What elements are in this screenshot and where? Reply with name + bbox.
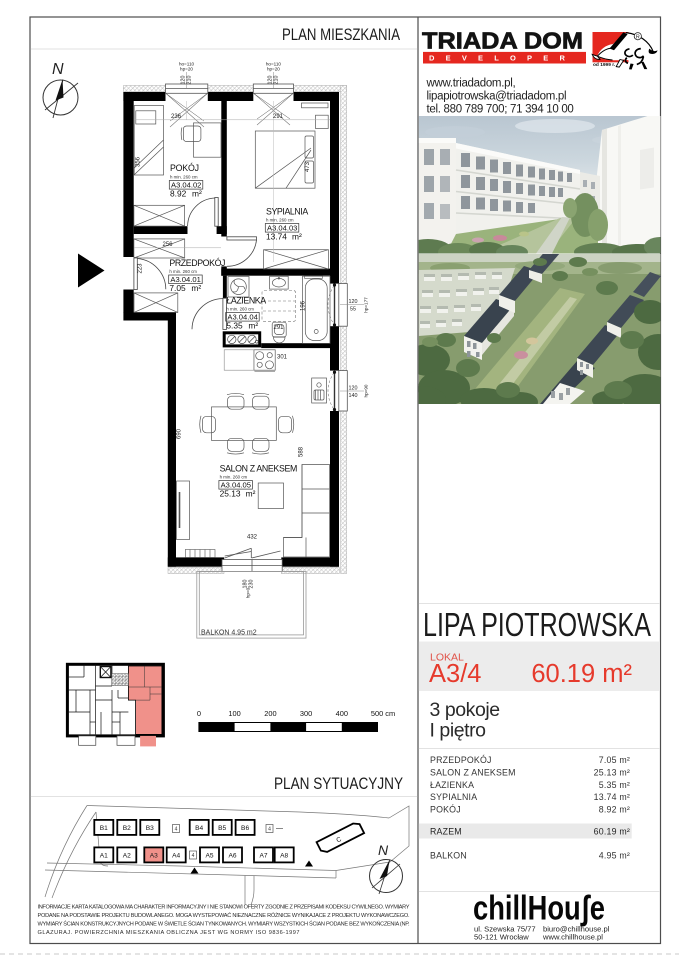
svg-text:BALKON: BALKON: [430, 851, 467, 861]
svg-text:8.92: 8.92: [170, 189, 187, 199]
svg-text:60.19 m²: 60.19 m²: [594, 827, 630, 837]
svg-text:TRIADA DOM: TRIADA DOM: [422, 28, 583, 54]
svg-text:25.13 m²: 25.13 m²: [594, 767, 630, 777]
svg-text:B6: B6: [241, 825, 249, 832]
svg-text:BALKON 4.95 m2: BALKON 4.95 m2: [201, 630, 257, 637]
svg-text:ŁAZIENKA: ŁAZIENKA: [226, 296, 266, 306]
svg-text:h min. 260 cm: h min. 260 cm: [226, 307, 254, 312]
svg-text:256: 256: [162, 242, 173, 248]
svg-text:291: 291: [273, 325, 284, 331]
svg-text:I piętro: I piętro: [430, 720, 487, 742]
svg-text:4.95 m²: 4.95 m²: [599, 851, 630, 861]
svg-text:A5: A5: [205, 853, 213, 860]
svg-text:hp=20: hp=20: [267, 67, 280, 72]
svg-text:DEVELOPER: DEVELOPER: [429, 54, 576, 63]
svg-text:SYPIALNIA: SYPIALNIA: [430, 792, 477, 802]
svg-text:N: N: [52, 61, 64, 78]
svg-text:5.35 m²: 5.35 m²: [599, 780, 630, 790]
svg-text:55: 55: [350, 307, 356, 313]
svg-text:POKÓJ: POKÓJ: [170, 163, 199, 173]
svg-text:25.13: 25.13: [220, 489, 241, 499]
svg-text:m²: m²: [248, 321, 258, 331]
svg-text:100: 100: [228, 709, 240, 718]
svg-text:500 cm: 500 cm: [371, 709, 395, 718]
svg-text:lipapiotrowska@triadadom.pl: lipapiotrowska@triadadom.pl: [427, 91, 567, 103]
svg-text:PRZEDPOKÓJ: PRZEDPOKÓJ: [430, 755, 492, 765]
svg-text:RAZEM: RAZEM: [430, 827, 462, 837]
svg-text:PLAN SYTUACYJNY: PLAN SYTUACYJNY: [274, 775, 403, 793]
svg-text:hp=90: hp=90: [364, 384, 369, 397]
svg-text:13.74 m²: 13.74 m²: [594, 792, 630, 802]
svg-text:50-121 Wrocław: 50-121 Wrocław: [474, 933, 529, 942]
svg-text:4: 4: [268, 827, 271, 833]
svg-text:m²: m²: [292, 232, 302, 242]
svg-text:www.triadadom.pl,: www.triadadom.pl,: [426, 78, 516, 90]
svg-text:hp=177: hp=177: [364, 297, 369, 313]
svg-text:SYPIALNIA: SYPIALNIA: [266, 207, 308, 217]
svg-text:PLAN MIESZKANIA: PLAN MIESZKANIA: [282, 26, 400, 44]
svg-text:0: 0: [197, 709, 201, 718]
svg-text:400: 400: [336, 709, 348, 718]
svg-text:hp=20: hp=20: [180, 67, 193, 72]
svg-text:300: 300: [300, 709, 312, 718]
svg-text:432: 432: [247, 535, 258, 541]
svg-text:A2: A2: [123, 853, 131, 860]
svg-text:473: 473: [305, 161, 311, 172]
svg-text:R: R: [636, 35, 640, 41]
svg-text:A7: A7: [259, 853, 267, 860]
svg-text:356: 356: [136, 156, 142, 167]
svg-text:hp=0: hp=0: [246, 587, 251, 598]
svg-text:SALON Z ANEKSEM: SALON Z ANEKSEM: [430, 767, 516, 777]
svg-text:m²: m²: [192, 189, 202, 199]
svg-text:236: 236: [171, 114, 182, 120]
svg-text:291: 291: [273, 114, 284, 120]
svg-text:7.05 m²: 7.05 m²: [599, 755, 630, 765]
svg-text:LIPA PIOTROWSKA: LIPA PIOTROWSKA: [423, 606, 651, 643]
svg-text:www.chillhouse.pl: www.chillhouse.pl: [542, 933, 603, 942]
svg-text:WYMIARY ŚCIAN KONSTRUKCYJNYCH: WYMIARY ŚCIAN KONSTRUKCYJNYCH PODANE W Ś…: [38, 920, 410, 928]
svg-text:PRZEDPOKÓJ: PRZEDPOKÓJ: [169, 258, 225, 268]
svg-text:230: 230: [249, 580, 255, 589]
svg-text:h min. 260 cm: h min. 260 cm: [169, 269, 197, 274]
svg-text:od 1999 r.: od 1999 r.: [593, 62, 615, 68]
svg-text:301: 301: [277, 355, 288, 361]
svg-text:60.19 m²: 60.19 m²: [531, 660, 632, 688]
svg-text:h min. 260 cm: h min. 260 cm: [220, 475, 248, 480]
svg-text:N: N: [378, 842, 389, 858]
svg-text:8.92 m²: 8.92 m²: [599, 805, 630, 815]
svg-text:POKÓJ: POKÓJ: [430, 805, 461, 815]
svg-text:3 pokoje: 3 pokoje: [430, 699, 500, 721]
svg-text:140: 140: [349, 393, 358, 399]
svg-text:A1: A1: [100, 853, 108, 860]
svg-text:A8: A8: [280, 853, 288, 860]
svg-text:4: 4: [175, 827, 178, 833]
svg-text:4: 4: [192, 853, 195, 859]
svg-text:A3/4: A3/4: [429, 660, 481, 688]
svg-text:chillHouʃe: chillHouʃe: [473, 890, 605, 928]
svg-text:196: 196: [301, 300, 307, 311]
svg-text:200: 200: [264, 709, 276, 718]
svg-text:120: 120: [349, 299, 358, 305]
svg-text:m²: m²: [191, 283, 201, 293]
svg-text:ŁAZIENKA: ŁAZIENKA: [430, 780, 474, 790]
svg-text:120: 120: [349, 386, 358, 392]
svg-text:B4: B4: [195, 825, 203, 832]
svg-text:SALON Z ANEKSEM: SALON Z ANEKSEM: [220, 464, 297, 474]
svg-text:GLAZURAJ. POWIERZCHNIA MIESZKA: GLAZURAJ. POWIERZCHNIA MIESZKANIA OBLICZ…: [38, 930, 300, 936]
svg-text:B1: B1: [100, 825, 108, 832]
svg-text:210: 210: [273, 76, 279, 85]
svg-text:A4: A4: [172, 853, 180, 860]
svg-text:7.05: 7.05: [169, 283, 186, 293]
svg-text:223: 223: [138, 263, 144, 274]
svg-text:h min. 260 cm: h min. 260 cm: [266, 218, 294, 223]
svg-text:210: 210: [187, 76, 193, 85]
svg-text:m²: m²: [246, 489, 256, 499]
svg-text:690: 690: [177, 428, 183, 439]
svg-text:B5: B5: [218, 825, 226, 832]
svg-text:INFORMACJE KARTA KATALOGOWA MA: INFORMACJE KARTA KATALOGOWA MA CHARAKTER…: [38, 905, 410, 911]
svg-text:13.74: 13.74: [266, 232, 287, 242]
svg-text:5.35: 5.35: [226, 321, 243, 331]
svg-text:A6: A6: [228, 853, 236, 860]
svg-text:PODANE NA PODSTAWIE PROJEKT: PODANE NA PODSTAWIE PROJEKTU BUDOWLANEGO…: [38, 912, 410, 919]
svg-text:B3: B3: [146, 825, 154, 832]
svg-text:588: 588: [299, 446, 305, 457]
svg-text:B2: B2: [123, 825, 131, 832]
svg-text:h min. 260 cm: h min. 260 cm: [170, 175, 198, 180]
svg-text:A3: A3: [150, 853, 158, 860]
svg-text:tel. 880 789 700; 71 394 10 00: tel. 880 789 700; 71 394 10 00: [427, 104, 574, 116]
